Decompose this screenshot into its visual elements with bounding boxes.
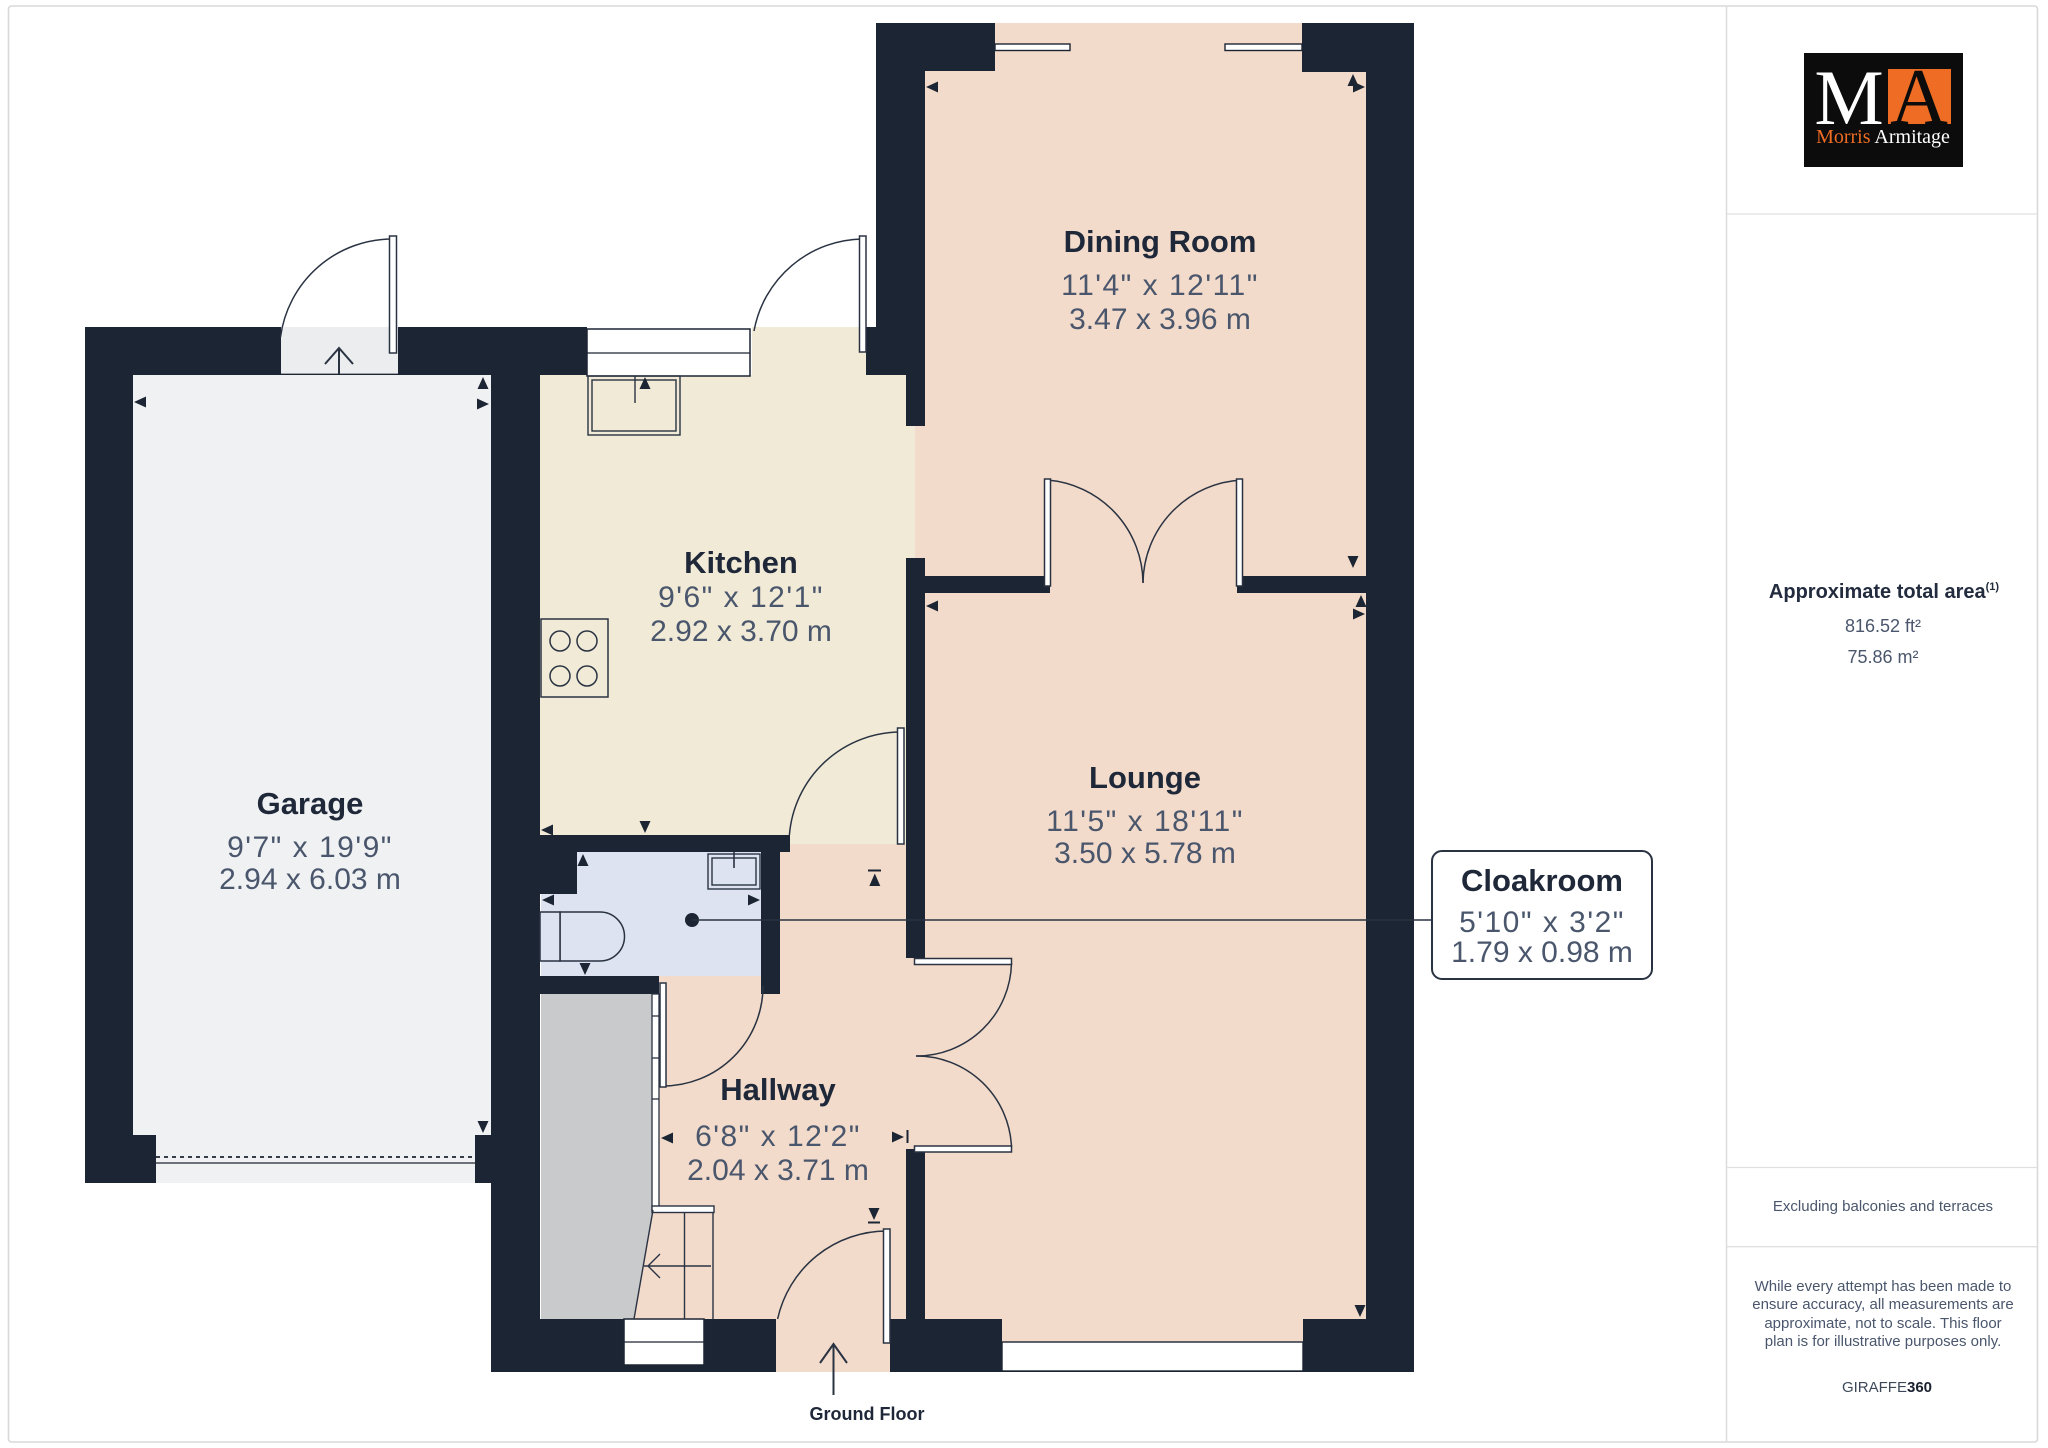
svg-text:2.92 x 3.70 m: 2.92 x 3.70 m (650, 615, 832, 648)
svg-text:Excluding balconies and terrac: Excluding balconies and terraces (1773, 1198, 1993, 1215)
svg-text:816.52 ft²: 816.52 ft² (1845, 616, 1921, 636)
svg-text:While every attempt has been m: While every attempt has been made to (1755, 1278, 2012, 1295)
svg-text:Garage: Garage (257, 786, 364, 821)
svg-text:75.86 m²: 75.86 m² (1847, 647, 1918, 667)
svg-text:3.50 x 5.78 m: 3.50 x 5.78 m (1054, 837, 1236, 870)
svg-text:11'5" x 18'11": 11'5" x 18'11" (1046, 805, 1244, 838)
svg-text:Morris Armitage: Morris Armitage (1816, 126, 1950, 148)
svg-text:ensure accuracy, all measureme: ensure accuracy, all measurements are (1752, 1296, 2014, 1313)
svg-text:6'8" x 12'2": 6'8" x 12'2" (695, 1120, 861, 1153)
svg-text:3.47 x 3.96 m: 3.47 x 3.96 m (1069, 303, 1251, 336)
svg-text:approximate, not to scale. Thi: approximate, not to scale. This floor (1764, 1315, 2001, 1332)
svg-text:9'7" x 19'9": 9'7" x 19'9" (227, 831, 393, 864)
svg-text:Hallway: Hallway (720, 1072, 836, 1107)
svg-text:Approximate total area(1): Approximate total area(1) (1769, 581, 2000, 603)
svg-text:5'10" x 3'2": 5'10" x 3'2" (1459, 906, 1625, 939)
svg-text:2.04 x 3.71 m: 2.04 x 3.71 m (687, 1154, 869, 1187)
svg-text:plan is for illustrative purpo: plan is for illustrative purposes only. (1765, 1333, 2002, 1350)
svg-text:11'4" x 12'11": 11'4" x 12'11" (1061, 269, 1259, 302)
svg-text:1.79 x 0.98 m: 1.79 x 0.98 m (1451, 936, 1633, 969)
svg-text:Kitchen: Kitchen (684, 545, 798, 580)
svg-text:Dining Room: Dining Room (1064, 224, 1257, 259)
svg-text:2.94 x 6.03 m: 2.94 x 6.03 m (219, 863, 401, 896)
svg-text:GIRAFFE360: GIRAFFE360 (1842, 1379, 1932, 1396)
svg-text:Lounge: Lounge (1089, 760, 1201, 795)
svg-text:9'6" x 12'1": 9'6" x 12'1" (658, 581, 824, 614)
svg-text:Cloakroom: Cloakroom (1461, 863, 1623, 898)
svg-text:Ground Floor: Ground Floor (810, 1404, 925, 1424)
